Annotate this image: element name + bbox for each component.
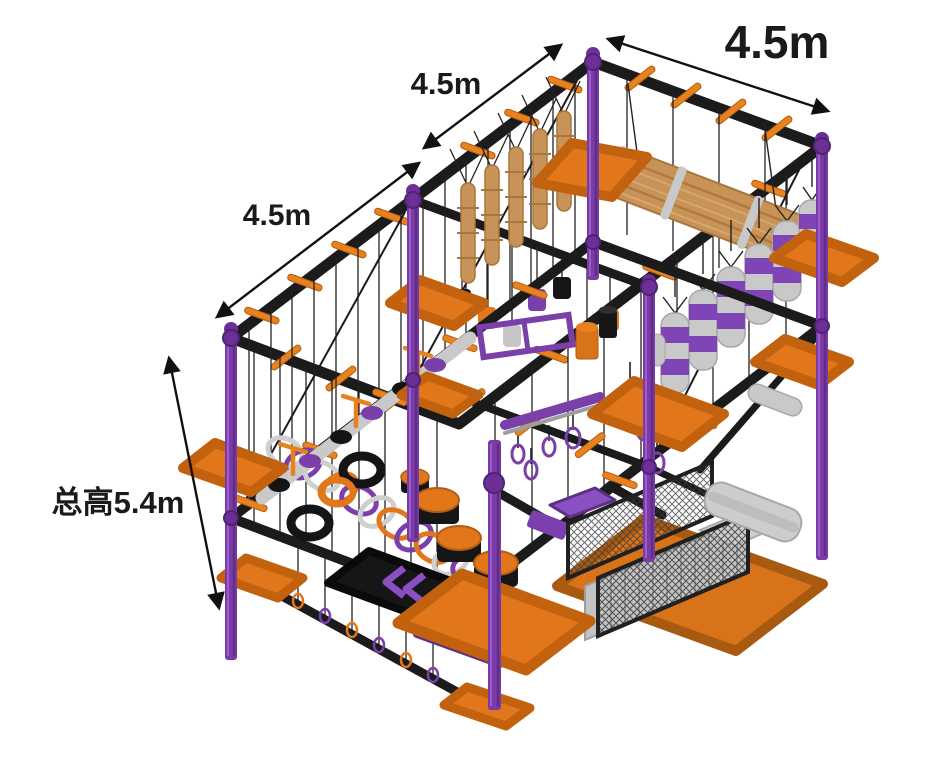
pole-left-corner (224, 322, 238, 660)
dimension-label-total-height: 总高5.4m (44, 487, 192, 520)
pole-center (642, 274, 656, 562)
dimension-label-left: 4.5m (233, 200, 321, 232)
pole-right-corner (815, 132, 829, 560)
dimension-label-top-right: 4.5m (712, 18, 842, 66)
pole-mid-left (406, 184, 420, 542)
platform-center (592, 381, 724, 447)
figure-canvas: 4.5m 4.5m 4.5m 总高5.4m (0, 0, 950, 767)
platform-midleft-upper (390, 280, 484, 326)
platform-bottom-foot (444, 687, 530, 726)
platform-right-lower (755, 339, 849, 385)
ropes-course-isometric-rendering (0, 0, 950, 767)
dimension-label-upper-middle: 4.5m (402, 68, 490, 101)
